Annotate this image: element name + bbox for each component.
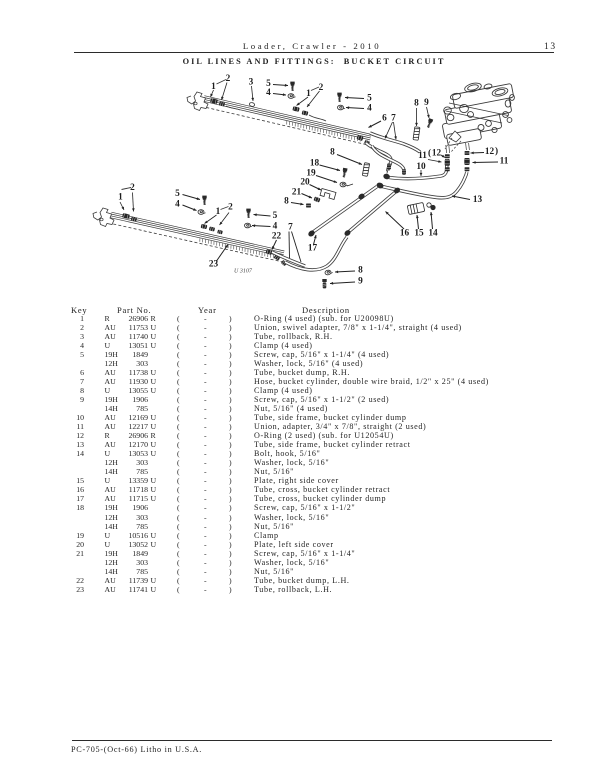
svg-text:12: 12 (432, 149, 442, 159)
svg-text:4: 4 (266, 88, 271, 98)
svg-text:11: 11 (500, 157, 509, 167)
svg-text:23: 23 (209, 260, 219, 270)
svg-text:1: 1 (306, 89, 311, 99)
svg-text:22: 22 (272, 232, 282, 242)
svg-text:2: 2 (319, 83, 324, 93)
svg-text:17: 17 (308, 244, 318, 254)
svg-text:13: 13 (473, 195, 483, 205)
svg-text:2: 2 (228, 203, 233, 213)
svg-text:8: 8 (284, 197, 289, 207)
svg-text:3: 3 (249, 78, 254, 88)
svg-text:7: 7 (391, 114, 396, 124)
svg-text:8: 8 (414, 99, 419, 109)
svg-text:1: 1 (216, 207, 221, 217)
svg-text:4: 4 (273, 222, 278, 232)
svg-text:7: 7 (288, 223, 293, 233)
svg-text:1: 1 (118, 193, 123, 203)
svg-text:6: 6 (382, 114, 387, 124)
svg-text:9: 9 (358, 277, 363, 287)
svg-text:16: 16 (400, 229, 410, 239)
svg-text:21: 21 (292, 188, 302, 198)
svg-text:5: 5 (273, 211, 278, 221)
svg-text:10: 10 (416, 162, 426, 172)
svg-text:5: 5 (367, 94, 372, 104)
svg-text:14: 14 (428, 229, 438, 239)
svg-text:5: 5 (175, 189, 180, 199)
svg-text:12: 12 (485, 147, 495, 157)
svg-text:2: 2 (226, 74, 231, 84)
svg-text:4: 4 (367, 104, 372, 114)
svg-text:8: 8 (330, 148, 335, 158)
svg-text:U 3107: U 3107 (234, 269, 253, 275)
svg-text:15: 15 (414, 229, 424, 239)
svg-text:4: 4 (175, 200, 180, 210)
svg-text:8: 8 (358, 266, 363, 276)
svg-text:18: 18 (310, 159, 320, 169)
svg-text:): ) (495, 146, 498, 157)
svg-text:1: 1 (211, 82, 216, 92)
svg-text:(: ( (428, 148, 431, 159)
svg-text:2: 2 (130, 183, 135, 193)
svg-text:9: 9 (424, 98, 429, 108)
svg-text:20: 20 (300, 178, 310, 188)
svg-text:11: 11 (418, 151, 427, 161)
